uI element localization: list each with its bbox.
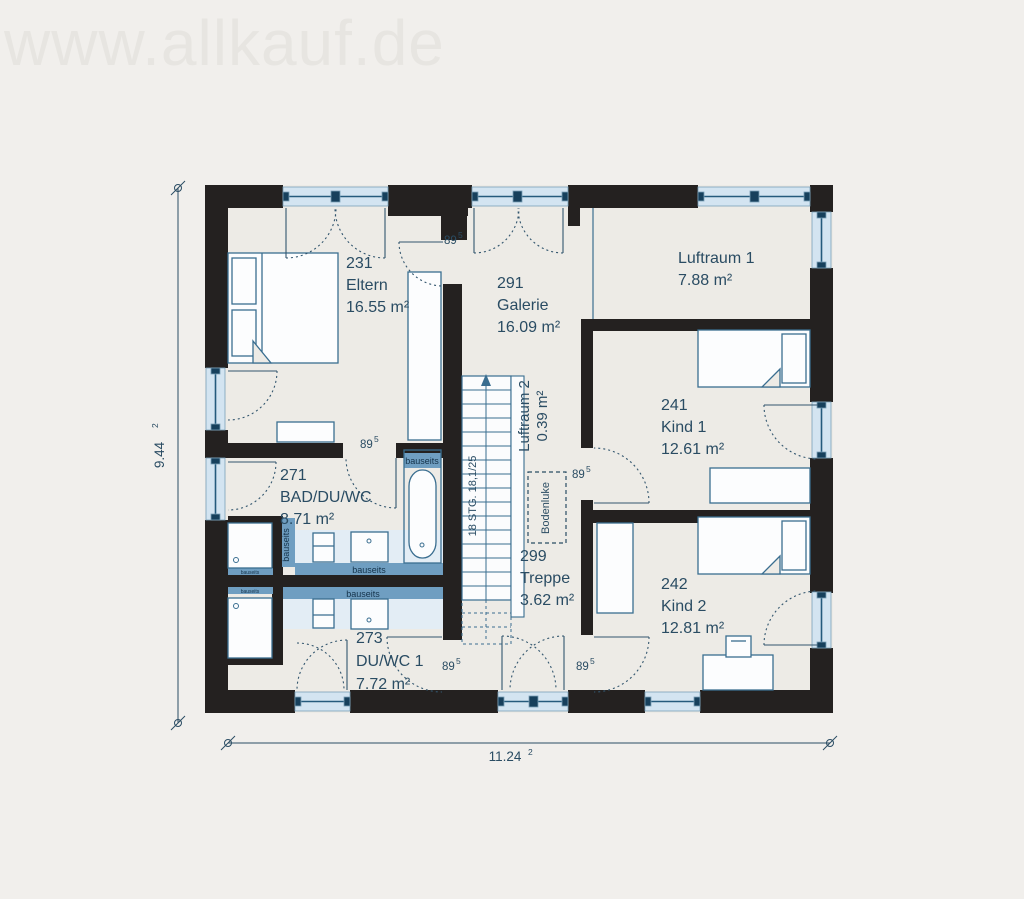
window-luftraum1-top bbox=[698, 187, 810, 206]
sink-duwc bbox=[351, 599, 388, 629]
room-kind2-area: 12.81 m² bbox=[661, 620, 725, 637]
window-right-top bbox=[812, 212, 831, 268]
floor-plan: 231 Eltern 16.55 m² 291 Galerie 16.09 m²… bbox=[0, 0, 1024, 899]
window-kind1-right bbox=[812, 402, 831, 458]
svg-text:2: 2 bbox=[528, 747, 533, 757]
window-eltern-top bbox=[283, 187, 388, 206]
room-luftraum1-name: Luftraum 1 bbox=[678, 250, 755, 267]
kind2-chair bbox=[726, 636, 751, 657]
toilet-bad bbox=[313, 533, 334, 562]
shower-duwc bbox=[228, 598, 272, 658]
room-treppe-id: 299 bbox=[520, 548, 547, 565]
room-eltern-name: Eltern bbox=[346, 277, 388, 294]
room-duwc-area: 7.72 m² bbox=[356, 676, 411, 693]
room-galerie-area: 16.09 m² bbox=[497, 319, 561, 336]
svg-text:89: 89 bbox=[360, 439, 373, 451]
window-bad-left bbox=[206, 458, 225, 520]
sink-bad bbox=[351, 532, 388, 562]
room-treppe-name: Treppe bbox=[520, 570, 570, 587]
svg-text:11.24: 11.24 bbox=[489, 749, 522, 764]
eltern-dresser bbox=[277, 422, 334, 442]
room-luftraum2-area: 0.39 m² bbox=[534, 391, 551, 442]
window-kind2-right bbox=[812, 592, 831, 648]
bauseits-label-tub: bauseits bbox=[405, 456, 439, 466]
window-hall-bottom bbox=[498, 692, 568, 711]
window-galerie-top bbox=[472, 187, 568, 206]
stairs-spec-label: 18 STG. 18,1/25 bbox=[467, 456, 479, 537]
dimension-height-line bbox=[171, 181, 185, 730]
svg-text:89: 89 bbox=[572, 469, 585, 481]
svg-text:5: 5 bbox=[586, 464, 591, 474]
svg-text:5: 5 bbox=[374, 434, 379, 444]
room-duwc-id: 273 bbox=[356, 630, 383, 647]
window-eltern-left bbox=[206, 368, 225, 430]
room-kind2-name: Kind 2 bbox=[661, 598, 706, 615]
kind2-wardrobe bbox=[597, 523, 633, 613]
window-duwc-bottom bbox=[295, 692, 350, 711]
room-eltern-id: 231 bbox=[346, 255, 373, 272]
bauseits-label-bad: bauseits bbox=[352, 565, 386, 575]
toilet-duwc bbox=[313, 599, 334, 628]
bauseits-label-shower2: bauseits bbox=[241, 589, 260, 595]
svg-text:5: 5 bbox=[458, 230, 463, 240]
bauseits-label-vertical: bauseits bbox=[281, 528, 291, 562]
dimension-height-label: 9.44 2 bbox=[150, 423, 167, 468]
room-treppe-area: 3.62 m² bbox=[520, 592, 575, 609]
shower-bad bbox=[228, 523, 272, 568]
room-kind1-name: Kind 1 bbox=[661, 419, 706, 436]
room-galerie-name: Galerie bbox=[497, 297, 549, 314]
dimension-width-label: 11.24 2 bbox=[489, 747, 533, 764]
room-luftraum1-area: 7.88 m² bbox=[678, 272, 733, 289]
eltern-wardrobe bbox=[408, 272, 441, 440]
kind1-shelf bbox=[710, 468, 810, 503]
svg-text:5: 5 bbox=[456, 656, 461, 666]
room-eltern-area: 16.55 m² bbox=[346, 299, 410, 316]
room-galerie-id: 291 bbox=[497, 275, 524, 292]
room-bad-id: 271 bbox=[280, 467, 307, 484]
svg-text:89: 89 bbox=[444, 235, 457, 247]
room-bad-name: BAD/DU/WC bbox=[280, 489, 372, 506]
bauseits-label-duwc: bauseits bbox=[346, 589, 380, 599]
eltern-double-bed bbox=[228, 253, 338, 363]
room-bad-area: 8.71 m² bbox=[280, 511, 335, 528]
bauseits-label-shower1: bauseits bbox=[241, 570, 260, 576]
window-kind2-bottom bbox=[645, 692, 700, 711]
svg-text:89: 89 bbox=[442, 661, 455, 673]
room-kind2-id: 242 bbox=[661, 576, 688, 593]
svg-text:9.44: 9.44 bbox=[152, 441, 167, 468]
room-kind1-area: 12.61 m² bbox=[661, 441, 725, 458]
room-luftraum2-name: Luftraum 2 bbox=[516, 380, 533, 452]
room-duwc-name: DU/WC 1 bbox=[356, 653, 424, 670]
room-kind1-id: 241 bbox=[661, 397, 688, 414]
kind1-bed bbox=[698, 330, 810, 387]
bodenluke-label: Bodenluke bbox=[540, 482, 552, 534]
svg-text:89: 89 bbox=[576, 661, 589, 673]
svg-text:5: 5 bbox=[590, 656, 595, 666]
svg-text:2: 2 bbox=[150, 423, 160, 428]
kind2-bed bbox=[698, 517, 810, 574]
